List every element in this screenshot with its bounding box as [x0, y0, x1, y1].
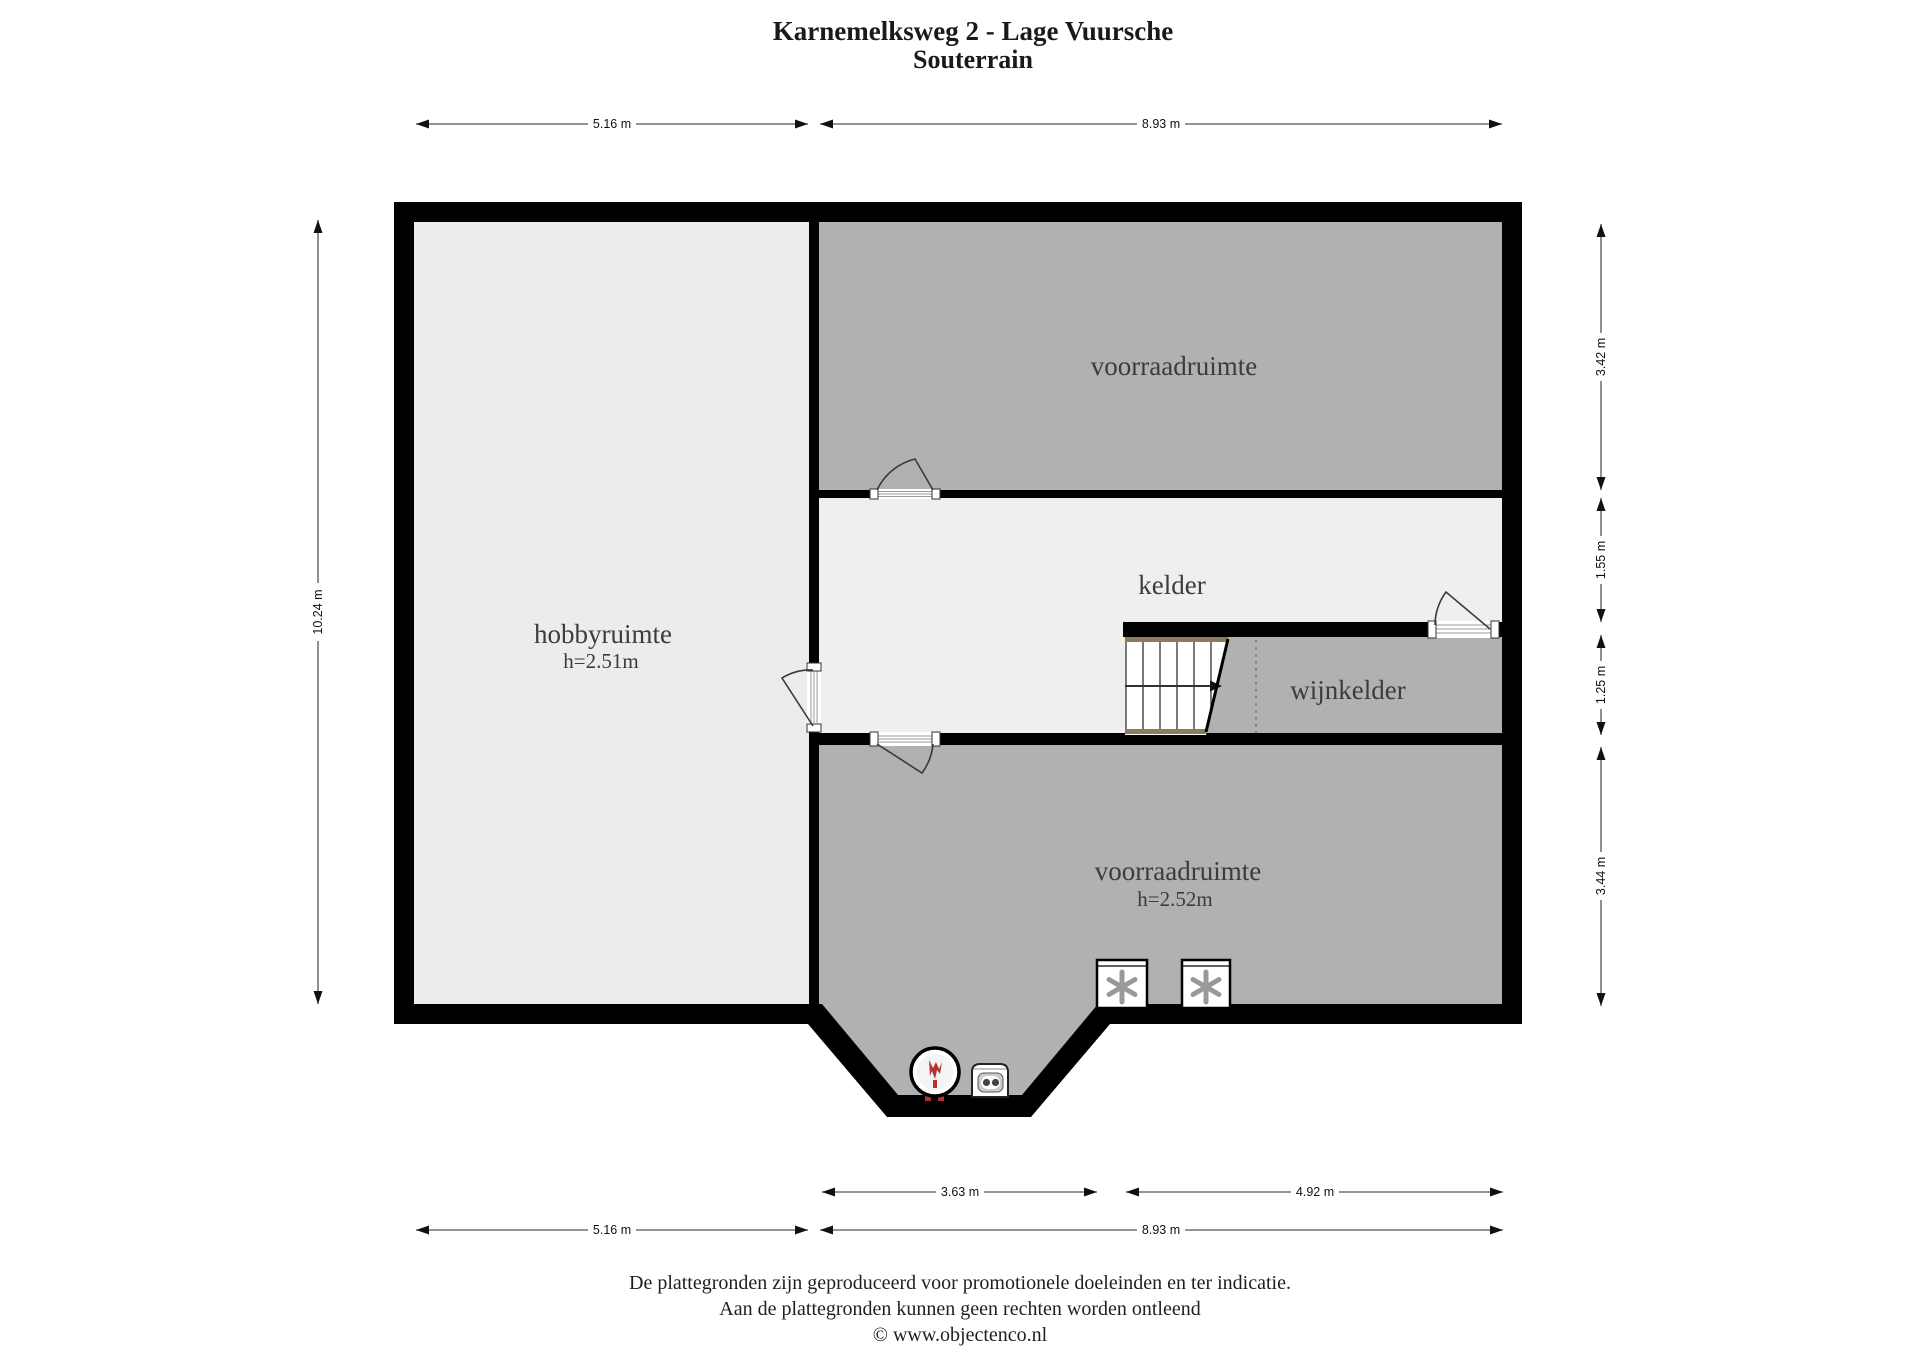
label-hobbyruimte-height: h=2.51m	[563, 649, 638, 673]
footer-line-3: © www.objectenco.nl	[0, 1322, 1920, 1348]
dim-left: 10.24 m	[310, 220, 326, 1004]
label-hobbyruimte: hobbyruimte	[534, 619, 672, 649]
dim-top-1: 5.16 m	[416, 116, 808, 132]
freezer-right	[1182, 960, 1230, 1008]
dim-bottom-outer-2: 8.93 m	[820, 1222, 1503, 1238]
dim-right-4: 3.44 m	[1593, 747, 1609, 1006]
label-voorraadruimte-bottom: voorraadruimte	[1095, 856, 1261, 886]
svg-text:1.25 m: 1.25 m	[1594, 666, 1608, 704]
room-hobbyruimte-floor	[414, 222, 809, 1004]
svg-text:5.16 m: 5.16 m	[593, 117, 631, 131]
dim-bottom-inner-2: 4.92 m	[1126, 1184, 1503, 1200]
dim-top-2: 8.93 m	[820, 116, 1502, 132]
svg-text:8.93 m: 8.93 m	[1142, 117, 1180, 131]
svg-text:3.63 m: 3.63 m	[941, 1185, 979, 1199]
svg-text:4.92 m: 4.92 m	[1296, 1185, 1334, 1199]
footer-disclaimer: De plattegronden zijn geproduceerd voor …	[0, 1270, 1920, 1348]
page-title: Karnemelksweg 2 - Lage Vuursche	[26, 16, 1920, 46]
dim-bottom-inner-1: 3.63 m	[822, 1184, 1097, 1200]
footer-line-1: De plattegronden zijn geproduceerd voor …	[0, 1270, 1920, 1296]
divider-wall	[807, 222, 821, 1024]
dim-right-3: 1.25 m	[1593, 635, 1609, 735]
svg-text:1.55 m: 1.55 m	[1594, 541, 1608, 579]
label-voorraadruimte-bottom-height: h=2.52m	[1137, 887, 1212, 911]
wall-kelder-voorraad-top	[819, 489, 1502, 499]
freezer-left	[1097, 960, 1147, 1008]
footer-line-2: Aan de plattegronden kunnen geen rechten…	[0, 1296, 1920, 1322]
floorplan-page: Karnemelksweg 2 - Lage Vuursche Souterra…	[0, 0, 1920, 1358]
page-subtitle: Souterrain	[26, 46, 1920, 74]
svg-text:8.93 m: 8.93 m	[1142, 1223, 1180, 1237]
dim-right-2: 1.55 m	[1593, 498, 1609, 622]
dim-bottom-outer-1: 5.16 m	[416, 1222, 808, 1238]
svg-text:3.42 m: 3.42 m	[1594, 338, 1608, 376]
room-voorraadruimte-bottom-floor	[819, 745, 1502, 1095]
wall-wijnkelder-top	[1123, 621, 1502, 638]
label-voorraadruimte-top: voorraadruimte	[1091, 351, 1257, 381]
dim-right-1: 3.42 m	[1593, 224, 1609, 490]
svg-text:3.44 m: 3.44 m	[1594, 857, 1608, 895]
svg-text:5.16 m: 5.16 m	[593, 1223, 631, 1237]
svg-text:10.24 m: 10.24 m	[311, 589, 325, 634]
label-kelder: kelder	[1138, 570, 1205, 600]
title-block: Karnemelksweg 2 - Lage Vuursche Souterra…	[0, 16, 1920, 74]
floorplan-svg: hobbyruimte h=2.51m voorraadruimte kelde…	[0, 0, 1920, 1358]
label-wijnkelder: wijnkelder	[1290, 675, 1405, 705]
outlet-unit	[972, 1064, 1008, 1097]
